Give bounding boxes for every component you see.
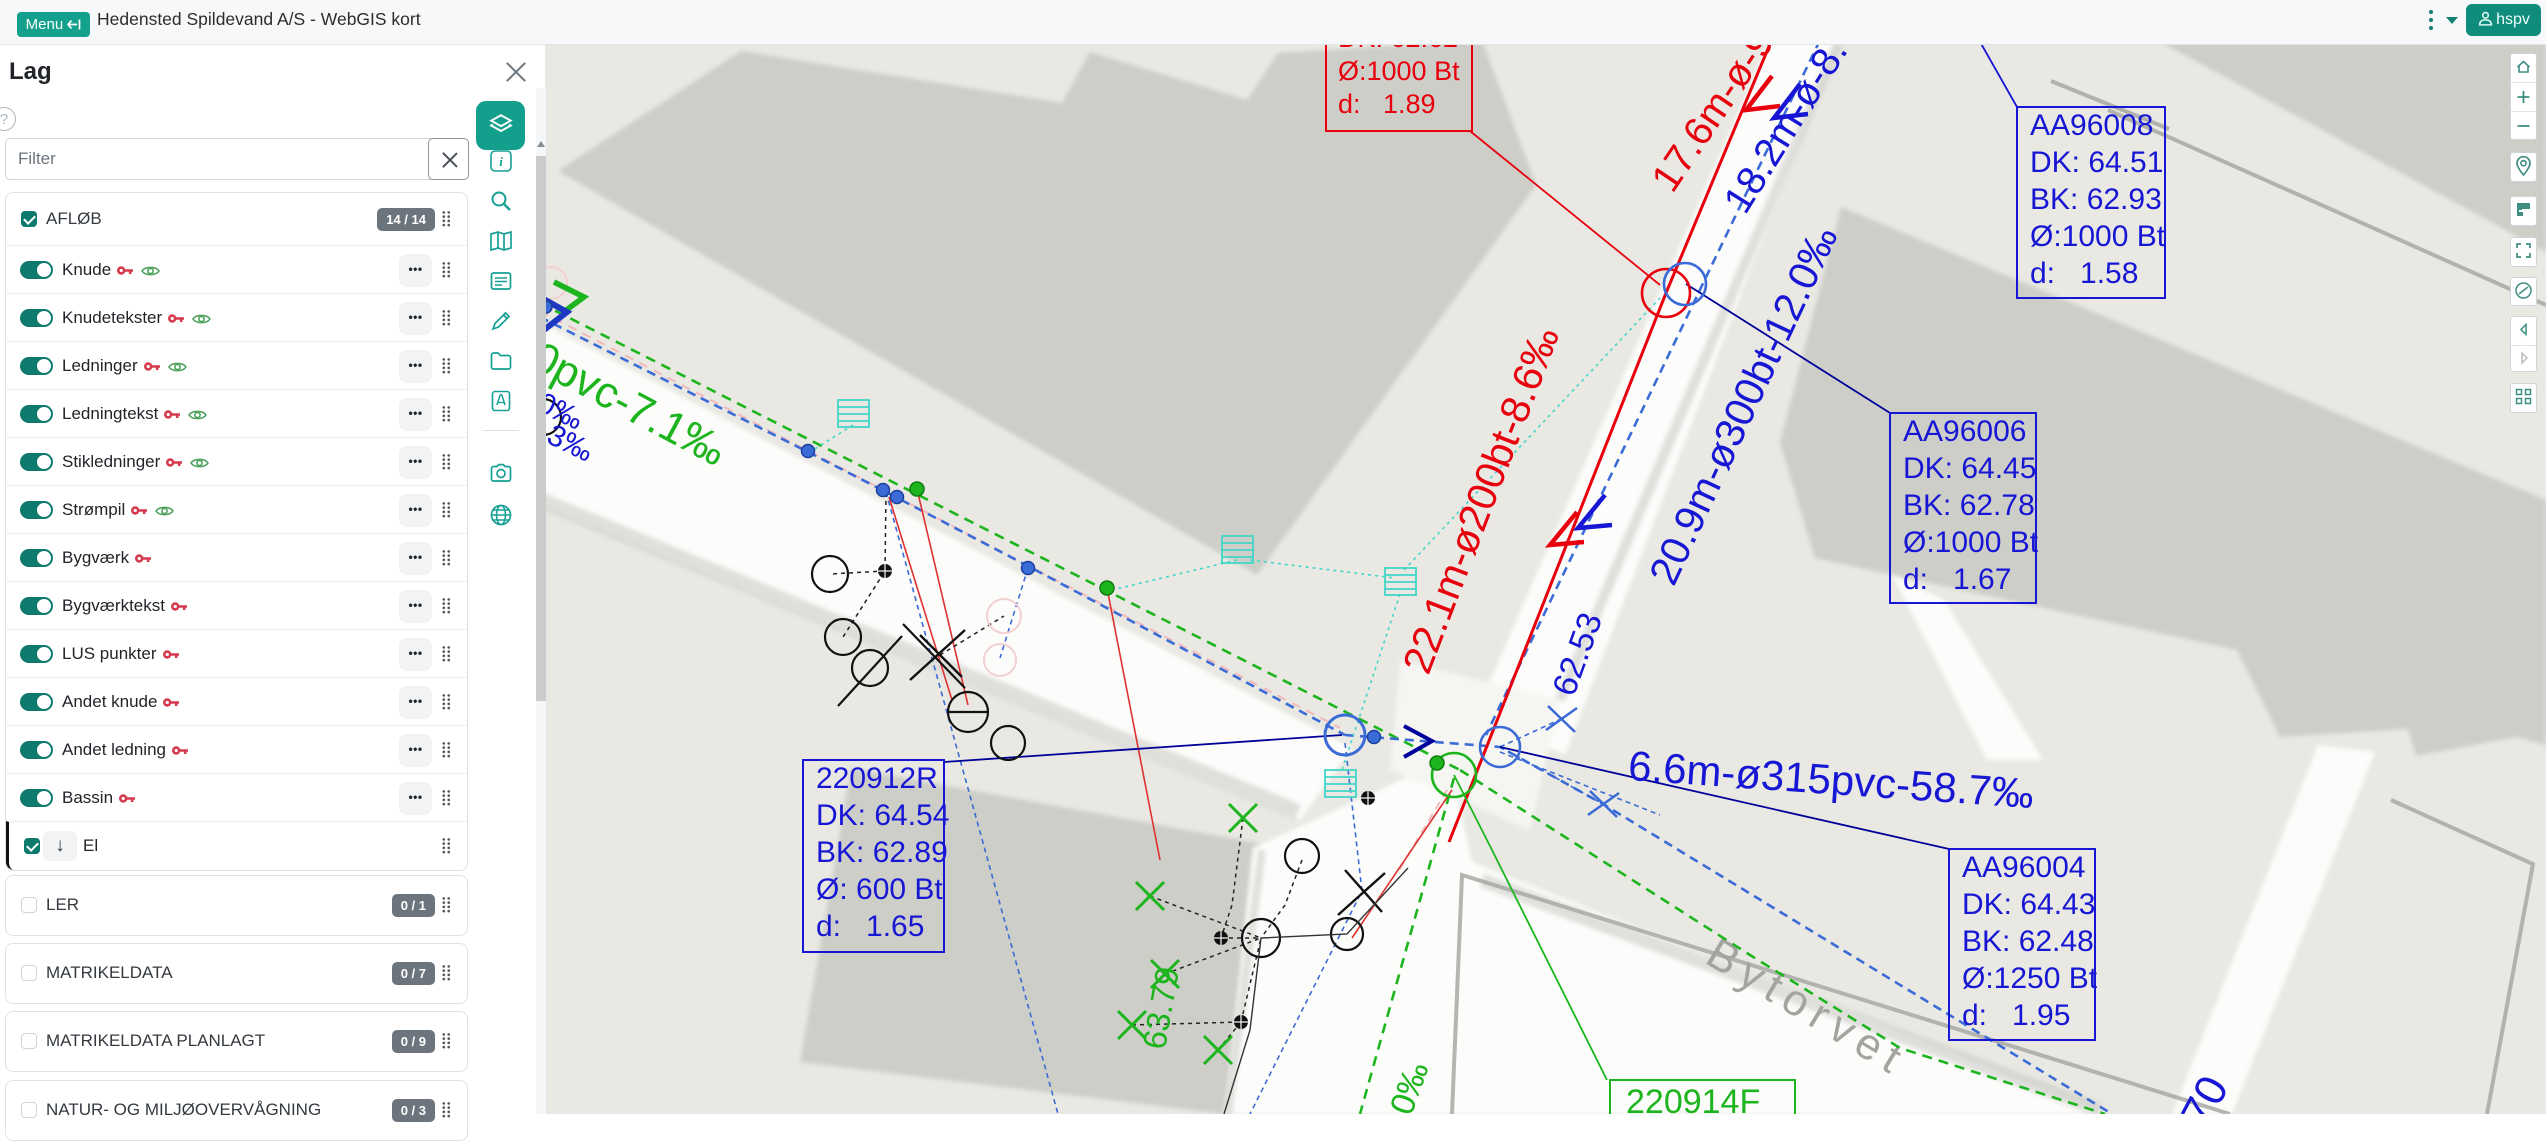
svg-text:AA96004: AA96004 [1962, 851, 2085, 884]
svg-text:DK: 64.43: DK: 64.43 [1962, 888, 2095, 921]
svg-text:d: 1.89: d: 1.89 [1338, 89, 1436, 119]
svg-text:DK: 64.51: DK: 64.51 [2030, 146, 2163, 179]
svg-text:AA96008: AA96008 [2030, 109, 2153, 142]
svg-text:i: i [499, 154, 503, 169]
svg-text:220914F: 220914F [1626, 1083, 1760, 1114]
svg-text:d: 1.65: d: 1.65 [816, 910, 924, 943]
svg-text:DK: 62.62: DK: 62.62 [1338, 45, 1458, 53]
svg-text:BK: 62.89: BK: 62.89 [816, 836, 948, 869]
svg-text:BK: 62.48: BK: 62.48 [1962, 925, 2094, 958]
svg-text:DK: 64.45: DK: 64.45 [1903, 452, 2036, 485]
svg-text:BK: 62.78: BK: 62.78 [1903, 489, 2035, 522]
svg-text:AA96006: AA96006 [1903, 415, 2026, 448]
svg-text:Ø:1000 Bt: Ø:1000 Bt [1338, 56, 1460, 86]
svg-text:d: 1.67: d: 1.67 [1903, 563, 2011, 596]
svg-text:220912R: 220912R [816, 762, 938, 795]
svg-text:d: 1.95: d: 1.95 [1962, 999, 2070, 1032]
svg-text:Ø:1000 Bt: Ø:1000 Bt [2030, 220, 2166, 253]
svg-text:BK: 62.93: BK: 62.93 [2030, 183, 2162, 216]
svg-text:Ø: 600 Bt: Ø: 600 Bt [816, 873, 943, 906]
svg-text:Ø:1250 Bt: Ø:1250 Bt [1962, 962, 2098, 995]
svg-text:DK: 64.54: DK: 64.54 [816, 799, 949, 832]
svg-text:d: 1.58: d: 1.58 [2030, 257, 2138, 290]
svg-text:Ø:1000 Bt: Ø:1000 Bt [1903, 526, 2039, 559]
